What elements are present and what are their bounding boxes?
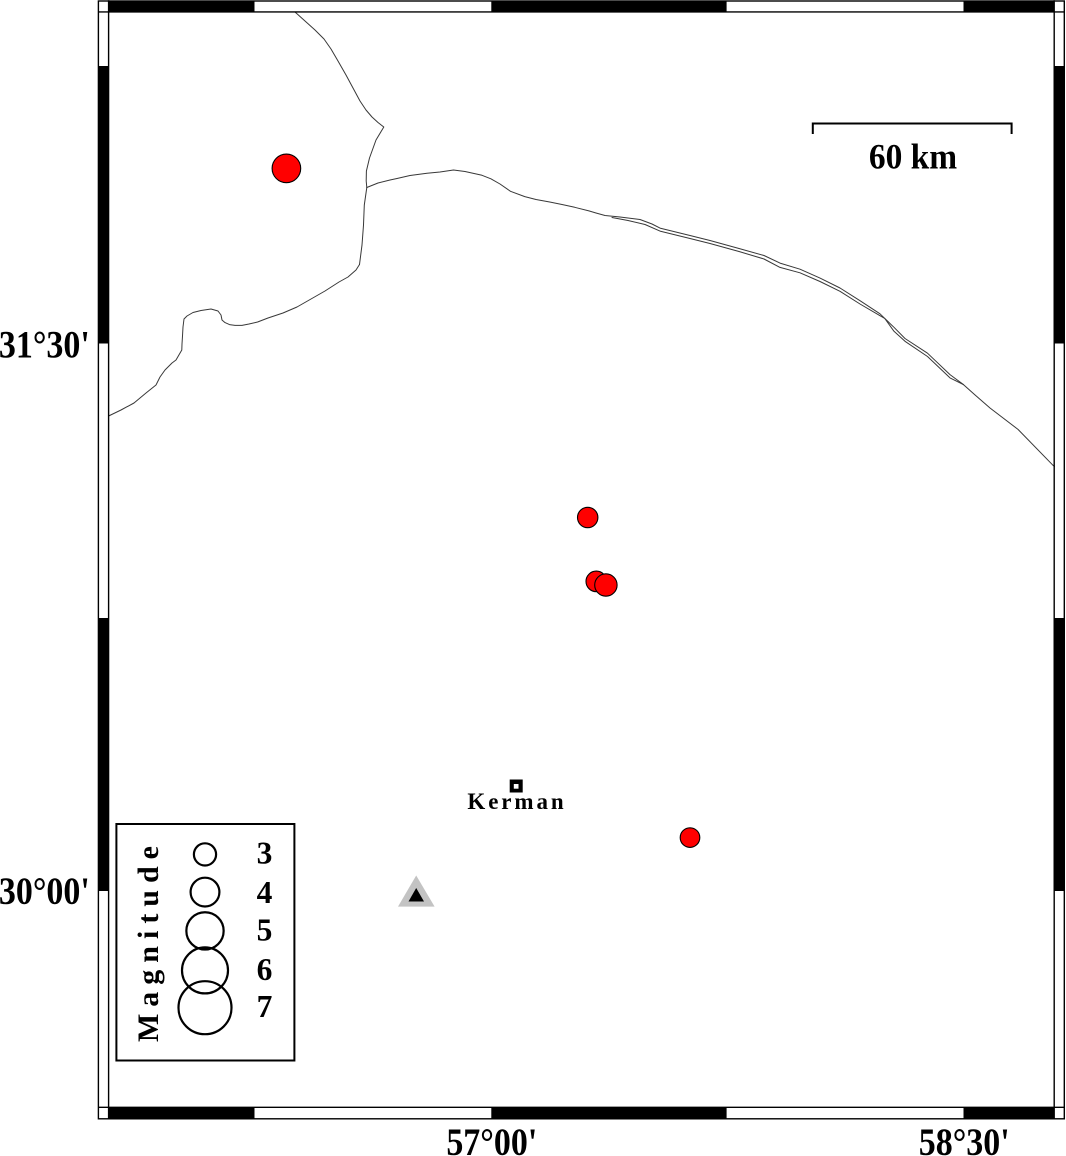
svg-text:31°30': 31°30' <box>0 322 90 366</box>
svg-text:57°00': 57°00' <box>446 1120 537 1156</box>
svg-text:60 km: 60 km <box>869 136 957 176</box>
svg-text:6: 6 <box>257 952 273 987</box>
svg-text:3: 3 <box>257 836 273 871</box>
svg-text:5: 5 <box>257 912 273 947</box>
svg-text:7: 7 <box>257 989 273 1024</box>
svg-text:58°30': 58°30' <box>919 1120 1010 1156</box>
svg-text:Kerman: Kerman <box>467 789 566 814</box>
svg-text:4: 4 <box>257 875 273 910</box>
svg-text:30°00': 30°00' <box>0 869 90 913</box>
svg-text:Magnitude: Magnitude <box>132 839 165 1042</box>
